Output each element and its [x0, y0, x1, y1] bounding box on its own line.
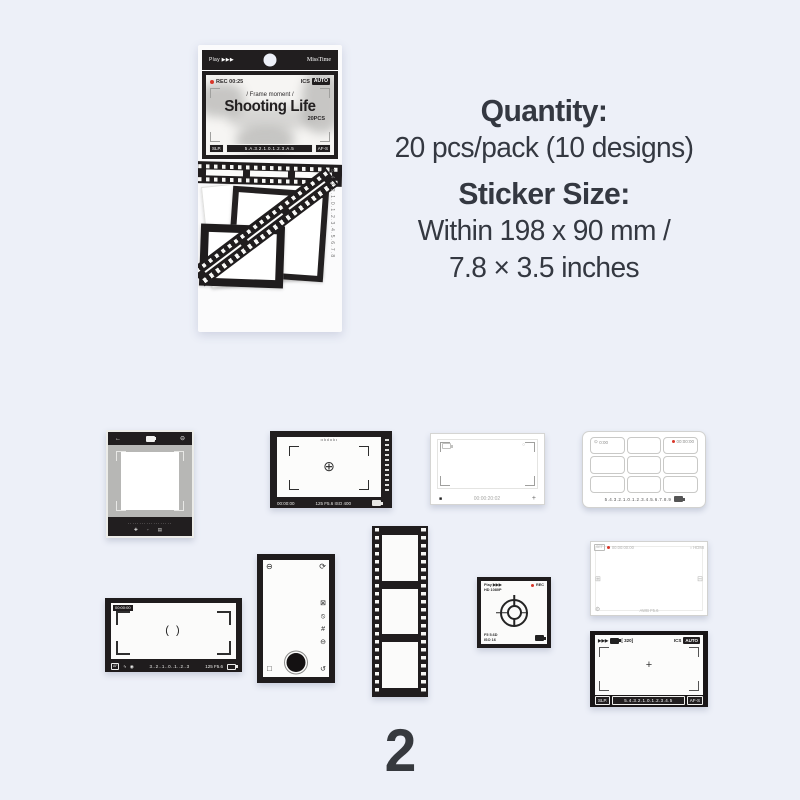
- sticker-viewfinder-small: ıılıılıılıı ⊕ 00:00:00 125 F5.6 ISO 400: [270, 431, 392, 508]
- shutter-square-icon: ■: [439, 496, 442, 502]
- top-ruler: ıılıılıılıı: [320, 437, 337, 442]
- grid-cell: [663, 476, 698, 493]
- corner-mark: [174, 501, 184, 511]
- left-group: ▶▶▶ [ 320]: [598, 638, 633, 644]
- gallery-icon: ⊠: [320, 600, 326, 607]
- center-plus-icon: +: [646, 659, 652, 671]
- package-cover-card: REC 00:25 ICS AUTO / Frame moment / Shoo…: [202, 71, 338, 159]
- rec-readout: 00:00:00: [672, 439, 694, 444]
- bottom-ruler: 5.4.3.2.1.0.1.2.3.4.5.6.7.8.9: [590, 493, 698, 505]
- play-label: Play ▶▶▶: [484, 583, 502, 588]
- film-frames: [382, 535, 418, 688]
- right-group: ICS AUTO: [674, 637, 700, 644]
- timer-icon: ⊖: [266, 562, 273, 571]
- play-hd-readout: Play ▶▶▶ HD 1080P: [484, 583, 502, 592]
- face-detect-icon: ◉: [130, 664, 134, 670]
- battery-icon: [535, 635, 544, 641]
- clock-readout: ⊙ 0:00: [594, 439, 608, 445]
- frame-inner: [595, 546, 703, 611]
- corner-mark: [217, 641, 231, 655]
- rec-timecode: 00:00:00: [676, 439, 694, 444]
- film-holes: [421, 528, 426, 695]
- grid-cell: [590, 456, 625, 473]
- timecode: 00:00:00: [277, 501, 295, 506]
- corner-mark: [116, 451, 126, 461]
- exposure-readout: F5 5.6D ISO 16: [484, 633, 498, 642]
- quantity-label: Quantity:: [373, 92, 714, 130]
- awb-label: AWB F5.6: [591, 608, 707, 613]
- aperture-label: F5 5.6D: [484, 633, 498, 638]
- cover-status-row: REC 00:25 ICS AUTO: [206, 75, 334, 85]
- corner-mark: [320, 132, 330, 142]
- battery-icon: [227, 664, 236, 670]
- ics-label: ICS: [301, 79, 310, 85]
- sticker-instax-frame: ← ⊖ ··················· ✚ ◦ ▤: [106, 430, 194, 538]
- pan-left-icon: ⊞: [595, 575, 601, 583]
- film-frame: [382, 642, 418, 688]
- slp-badge: SLP.: [595, 696, 610, 705]
- battery-icon: [610, 638, 619, 644]
- brand-label: MissTime: [307, 57, 331, 63]
- pan-right-icon: ⊟: [697, 575, 703, 583]
- viewfinder-screen: ▶▶▶ [ 320] ICS AUTO +: [595, 635, 703, 695]
- plus-icon: +: [532, 495, 536, 502]
- viewfinder-screen: ıılıılıılıı ⊕: [277, 437, 381, 497]
- corner-mark: [116, 641, 130, 655]
- ev-scale-badge: 5.A.3.2.1.0.1.2.3.A.5: [226, 144, 313, 153]
- battery-icon: [372, 500, 381, 506]
- size-value-mm: Within 198 x 90 mm /: [373, 213, 714, 250]
- battery-icon: [674, 496, 683, 502]
- frame-count: [ 320]: [621, 638, 633, 643]
- grid-cell: [663, 456, 698, 473]
- focus-marks: ( ): [165, 624, 181, 636]
- film-holes: [375, 528, 380, 695]
- page-number: 2: [20, 716, 780, 785]
- side-icon-column: ⊠ ⦸ # ⊖: [320, 600, 326, 646]
- sticker-pile: 5.4.3.2.1.0.1.2.3.4.5.6.7.8: [204, 163, 336, 325]
- pcs-count: 20PCS: [206, 116, 334, 122]
- sticker-package: Play ▶▶▶ MissTime REC 00:25 ICS AUTO: [198, 45, 342, 332]
- grid-cell: [627, 437, 662, 454]
- status-row: ▶▶▶ [ 320] ICS AUTO: [598, 637, 700, 644]
- hd-label: HD 1080P: [484, 588, 502, 593]
- cover-footer-badges: SLP. 5.A.3.2.1.0.1.2.3.A.5 AF-S: [209, 144, 331, 153]
- size-value-inches: 7.8 × 3.5 inches: [373, 250, 714, 287]
- timer-small-icon: ⊖: [320, 639, 326, 646]
- iso-label: ISO 16: [484, 638, 498, 643]
- rec-screen: Play ▶▶▶ HD 1080P REC F5 5.6D ISO 16: [481, 581, 547, 644]
- rec-dot-icon: [607, 546, 610, 549]
- ruler-dots: ···················: [128, 522, 172, 526]
- corner-mark: [116, 611, 130, 625]
- corner-mark: [210, 132, 220, 142]
- package-header: Play ▶▶▶ MissTime: [202, 50, 338, 70]
- sticker-grid-sheet: ⊙ 0:00 00:00:00 5.4.3.2.1.0.1.2.3.4.5.6.…: [582, 431, 706, 508]
- corner-mark: [440, 442, 450, 452]
- side-scale: [385, 439, 389, 494]
- package-title: Shooting Life: [210, 98, 330, 116]
- flash-off-icon: ⦸: [320, 613, 326, 620]
- mode-indicators: ICS AUTO: [301, 78, 330, 85]
- spacer: [373, 167, 714, 175]
- sticker-rec-square: Play ▶▶▶ HD 1080P REC F5 5.6D ISO 16: [477, 577, 551, 648]
- ics-label: ICS: [674, 638, 682, 643]
- exposure-info: 125 F5.6: [205, 664, 223, 669]
- shutter-button: [287, 653, 306, 672]
- corner-mark: [525, 476, 535, 486]
- corner-mark: [599, 647, 609, 657]
- af-badge: AF: [111, 663, 119, 670]
- clock-icon: ⊙: [594, 439, 598, 445]
- auto-badge: AUTO: [683, 637, 700, 644]
- timecode: 00:00:00:00: [612, 545, 634, 550]
- afs-badge: AF-S: [687, 696, 703, 705]
- rec-indicator: REC: [531, 583, 544, 587]
- dv-status-row: SET 00:00:00:00 ○ HDMI: [594, 544, 704, 551]
- corner-mark: [440, 476, 450, 486]
- flash-icon: ϟ: [123, 664, 125, 669]
- set-badge: SET: [594, 544, 605, 551]
- frame-square-icon: □: [267, 664, 272, 673]
- rec-dot-icon: [210, 80, 214, 84]
- film-frame: [382, 589, 418, 635]
- rec-label: REC 00:25: [216, 79, 243, 85]
- afs-badge: AF-S: [315, 144, 331, 153]
- exposure-info: 125 F5.6 ISO 400: [316, 501, 352, 506]
- frame-footer: ■ 00:00:20:02 +: [439, 495, 536, 502]
- grid-cell: [627, 476, 662, 493]
- timecode: 00:00:20:02: [474, 496, 500, 502]
- product-image: Play ▶▶▶ MissTime REC 00:25 ICS AUTO: [0, 0, 800, 800]
- viewfinder-screen: 00:00:00 ( ): [111, 603, 236, 659]
- battery-icon: [146, 436, 155, 442]
- photo-window: [121, 452, 179, 510]
- sticker-camera-back: ⊖ ⟳ ⊠ ⦸ # ⊖ □ ↺: [257, 554, 335, 683]
- corner-mark: [289, 480, 299, 490]
- ev-scale-badge: 5.4.3.2.1.0.1.2.3.4.5: [612, 696, 685, 705]
- corner-mark: [525, 442, 535, 452]
- instax-top-bar: ← ⊖: [108, 432, 192, 445]
- viewfinder-footer: AF ϟ ◉ 3..2..1..0..1..2..3 125 F5.6: [111, 663, 236, 670]
- grid-cell: ⊙ 0:00: [590, 437, 625, 454]
- rec-label: REC: [536, 583, 544, 587]
- rotate-icon: ⟳: [319, 562, 326, 571]
- product-info: Quantity: 20 pcs/pack (10 designs) Stick…: [373, 92, 714, 287]
- grid-cell: 00:00:00: [663, 437, 698, 454]
- hang-hole: [264, 54, 277, 67]
- size-label: Sticker Size:: [373, 175, 714, 213]
- grid-icon: #: [320, 626, 326, 633]
- hdmi-label: ○ HDMI: [690, 545, 704, 550]
- rec-indicator: REC 00:25: [210, 79, 243, 85]
- corner-mark: [289, 446, 299, 456]
- play-label: Play ▶▶▶: [209, 57, 234, 63]
- viewfinder-footer: 00:00:00 125 F5.6 ISO 400: [277, 500, 381, 506]
- timer-icon: ⊖: [180, 435, 185, 442]
- frame-inner: ○: [437, 439, 538, 489]
- corner-mark: [689, 647, 699, 657]
- sticker-viewfinder-landscape: 00:00:00 ( ) AF ϟ ◉ 3..2..1..0..1..2..3 …: [105, 598, 242, 672]
- camera-screen: ⊖ ⟳ ⊠ ⦸ # ⊖ □ ↺: [263, 560, 329, 677]
- cover-panel: REC 00:25 ICS AUTO / Frame moment / Shoo…: [206, 75, 334, 155]
- rec-dot-icon: [531, 584, 534, 587]
- side-ruler: 5.4.3.2.1.0.1.2.3.4.5.6.7.8: [329, 169, 335, 258]
- sticker-photo-frame: ○ ■ 00:00:20:02 +: [430, 433, 545, 505]
- corner-mark: [116, 501, 126, 511]
- sticker-film-strip: [372, 526, 428, 697]
- control-icons: ✚ ◦ ▤: [134, 527, 166, 532]
- play-arrows: ▶▶▶: [598, 638, 608, 644]
- corner-mark: [217, 611, 231, 625]
- sticker-dv-frame: SET 00:00:00:00 ○ HDMI ⊞ ⊟ ⚙ AWB F5.6: [590, 541, 708, 616]
- clock-value: 0:00: [599, 440, 608, 445]
- focus-point-icon: ⊕: [323, 458, 335, 475]
- rec-group: SET 00:00:00:00: [594, 544, 634, 551]
- target-inner-ring: [507, 605, 522, 620]
- corner-mark: [689, 681, 699, 691]
- footer-badges: SLP. 5.4.3.2.1.0.1.2.3.4.5 AF-S: [595, 696, 703, 705]
- quantity-value: 20 pcs/pack (10 designs): [373, 130, 714, 167]
- corner-mark: [359, 480, 369, 490]
- camera-flip-icon: ↺: [320, 665, 326, 673]
- sticker-viewfinder-package-style: ▶▶▶ [ 320] ICS AUTO + SLP. 5.4.3.2.1.0.1…: [590, 631, 708, 707]
- corner-mark: [174, 451, 184, 461]
- grid-cell: [590, 476, 625, 493]
- film-frame: [382, 535, 418, 581]
- grid-cell: [627, 456, 662, 473]
- instax-body: [108, 445, 192, 517]
- back-arrow-icon: ←: [115, 436, 121, 442]
- auto-badge: AUTO: [312, 78, 330, 85]
- ruler-scale: 5.4.3.2.1.0.1.2.3.4.5.6.7.8.9: [605, 497, 672, 502]
- corner-mark: [599, 681, 609, 691]
- ev-scale: 3..2..1..0..1..2..3: [138, 664, 201, 669]
- nine-grid: ⊙ 0:00 00:00:00: [590, 437, 698, 493]
- target-crosshair-icon: [500, 599, 528, 627]
- corner-mark: [359, 446, 369, 456]
- rec-dot-icon: [672, 440, 675, 443]
- instax-bottom-bar: ··················· ✚ ◦ ▤: [108, 517, 192, 536]
- slp-badge: SLP.: [209, 144, 224, 153]
